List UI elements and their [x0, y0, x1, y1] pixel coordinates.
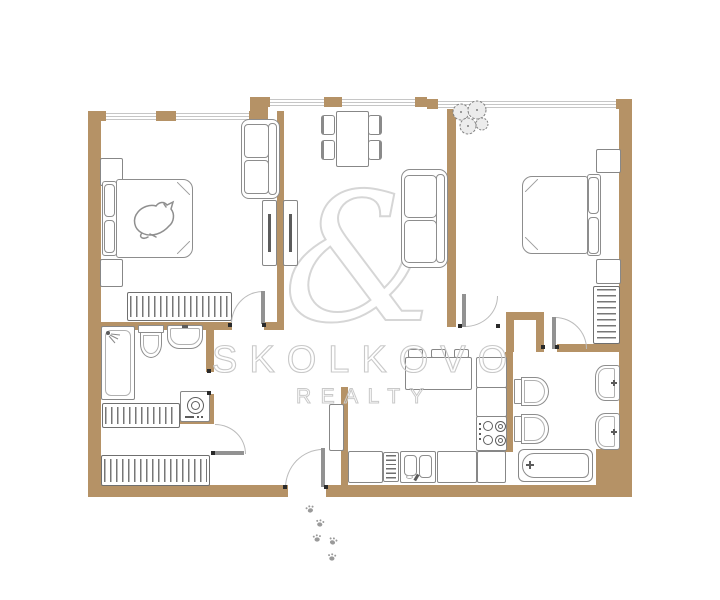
- paw-print-icon: [327, 552, 338, 563]
- hall-cabinet: [329, 404, 344, 451]
- shower: [101, 326, 135, 400]
- sink-basin: [404, 455, 417, 476]
- toilet-bowl-inner: [524, 417, 545, 441]
- sofa-back: [436, 174, 445, 263]
- wardrobe: [101, 455, 210, 486]
- door-arc: [465, 296, 498, 327]
- door-jamb: [207, 369, 211, 373]
- wall-bottom-right: [326, 485, 606, 497]
- sofa-cushion: [244, 124, 269, 158]
- sofa-back: [268, 123, 277, 195]
- blanket-fold: [525, 237, 538, 250]
- sink: [595, 413, 620, 450]
- window: [342, 97, 415, 107]
- sink: [167, 325, 203, 349]
- door-jamb: [555, 345, 559, 349]
- door-jamb: [207, 391, 211, 395]
- door-arc: [215, 424, 246, 454]
- double-bed: [102, 179, 193, 258]
- dining-chair: [368, 140, 382, 160]
- sofa-cushion: [404, 220, 437, 263]
- paw-print-icon: [314, 517, 326, 529]
- nightstand: [100, 259, 123, 287]
- door-jamb: [496, 324, 500, 328]
- toilet-bowl-inner: [524, 380, 545, 403]
- door-jamb: [458, 324, 462, 328]
- burner: [483, 435, 493, 445]
- bathtub-inner: [522, 453, 589, 478]
- toilet-bowl-inner: [143, 335, 159, 354]
- bathtub: [518, 449, 593, 482]
- sink-basin-inner: [170, 328, 200, 345]
- wall-bath-left-a: [206, 330, 214, 372]
- dishwasher: [383, 452, 399, 482]
- tv-screen: [268, 214, 271, 252]
- toilet: [514, 376, 550, 407]
- tv-unit: [262, 200, 277, 266]
- door-jamb: [211, 451, 215, 455]
- burner-inner: [498, 438, 503, 443]
- dining-chair: [368, 115, 382, 135]
- floorplan-canvas: &: [0, 0, 720, 600]
- toilet: [514, 413, 550, 445]
- sink: [595, 365, 620, 401]
- wall-bedroom-left-bottom-b: [264, 322, 284, 330]
- kitchen-counter: [437, 451, 477, 483]
- burner: [483, 421, 493, 431]
- kitchen-counter: [476, 357, 507, 388]
- window: [176, 111, 249, 121]
- washing-machine: [180, 391, 210, 422]
- nightstand: [596, 259, 621, 284]
- door-jamb: [262, 323, 266, 327]
- wall-bottom-left: [88, 485, 288, 497]
- wall-corner-block: [596, 449, 632, 497]
- door-jamb: [541, 345, 545, 349]
- sink-basin: [419, 455, 432, 478]
- wardrobe: [127, 292, 232, 321]
- shelf-unit: [593, 286, 620, 344]
- nightstand: [596, 149, 621, 173]
- dining-chair: [321, 140, 335, 160]
- paw-print-icon: [327, 535, 340, 548]
- entrance-door-leaf: [321, 448, 325, 487]
- bed-pillow: [588, 177, 599, 214]
- blanket-fold: [177, 182, 190, 195]
- sofa-cushion: [404, 175, 437, 218]
- kitchen-island: [405, 357, 472, 390]
- paw-print-icon: [312, 533, 323, 544]
- door-jamb: [324, 485, 328, 489]
- washer-drum-inner: [191, 401, 200, 410]
- tv-unit: [283, 200, 298, 266]
- door-leaf: [215, 451, 244, 455]
- shower-head-icon: [104, 329, 124, 349]
- wall-living-bedroom-right: [447, 109, 456, 327]
- sofa-cushion: [244, 160, 269, 194]
- sleeping-cat-icon: [128, 197, 180, 245]
- wall-top-step: [250, 97, 268, 121]
- sofa: [401, 169, 448, 268]
- bed-pillow: [104, 184, 115, 217]
- door-arc: [555, 317, 587, 349]
- toilet: [137, 325, 165, 358]
- door-jamb: [228, 323, 232, 327]
- entrance-door-arc: [285, 449, 323, 488]
- door-leaf: [261, 291, 265, 324]
- kitchen-counter: [477, 451, 506, 483]
- door-jamb: [283, 485, 287, 489]
- paw-print-icon: [304, 503, 316, 515]
- washer-knob: [201, 416, 203, 418]
- dining-table: [336, 111, 369, 167]
- door-arc: [231, 291, 263, 324]
- faucet: [182, 325, 188, 328]
- tv-screen: [289, 214, 292, 252]
- kitchen-sink-unit: [400, 451, 436, 483]
- sofa: [241, 119, 280, 199]
- bed-pillow: [104, 220, 115, 253]
- window: [270, 97, 324, 107]
- plant-icon: [449, 99, 495, 141]
- kitchen-counter: [348, 451, 383, 483]
- double-bed: [522, 174, 601, 256]
- washer-knob: [197, 416, 199, 418]
- bed-pillow: [588, 217, 599, 254]
- soap-dish: [406, 475, 413, 479]
- wardrobe: [102, 403, 180, 428]
- burner-inner: [498, 424, 503, 429]
- blanket-fold: [525, 179, 538, 192]
- dining-chair: [321, 115, 335, 135]
- kitchen-counter: [476, 387, 507, 417]
- stove: [476, 416, 507, 451]
- door-leaf: [462, 294, 466, 327]
- window: [106, 111, 156, 121]
- washer-panel: [185, 416, 194, 418]
